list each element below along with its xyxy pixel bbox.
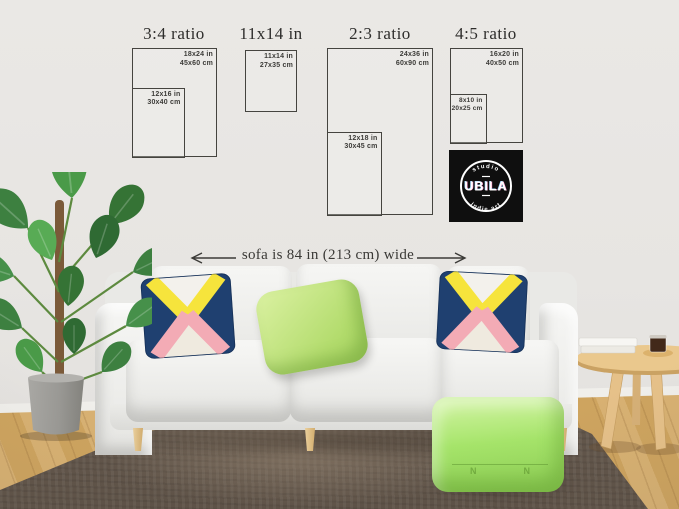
side-table [565, 325, 679, 465]
frame-label-16x20: 16x20 in 40x50 cm [486, 51, 519, 68]
geometric-pillow-left [139, 272, 236, 360]
plant-leaves [0, 172, 152, 380]
heading-4-5-ratio: 4:5 ratio [455, 24, 517, 44]
candle-lid [650, 335, 667, 339]
pouf-stitch: N [470, 465, 477, 476]
heading-2-3-ratio: 2:3 ratio [349, 24, 411, 44]
candle-jar [650, 337, 666, 352]
left-arrow-icon [188, 251, 236, 265]
green-pouf: N N [432, 397, 564, 492]
frame-label-12x16: 12x16 in 30x40 cm [147, 91, 180, 108]
geometric-pillow-right [435, 270, 529, 355]
frame-label-12x18: 12x18 in 30x45 cm [344, 135, 377, 152]
green-pillow [253, 277, 370, 378]
heading-3-4-ratio: 3:4 ratio [143, 24, 205, 44]
frame-label-18x24: 18x24 in 45x60 cm [180, 51, 213, 68]
frame-24x36: 24x36 in 60x90 cm 12x18 in 30x45 cm [327, 48, 433, 215]
right-arrow-icon [417, 251, 469, 265]
book-bottom [581, 346, 635, 353]
logo-name: UBILA [464, 179, 507, 193]
pouf-seam: N N [452, 464, 548, 476]
frame-12x18: 12x18 in 30x45 cm [327, 132, 382, 216]
frame-label-11x14: 11x14 in 27x35 cm [260, 53, 293, 70]
table-shadow [589, 441, 641, 453]
pot-rim [28, 374, 84, 383]
room-mockup-scene: 3:4 ratio 18x24 in 45x60 cm 12x16 in 30x… [0, 0, 679, 509]
frame-8x10: 8x10 in 20x25 cm [450, 94, 487, 144]
book-top [579, 338, 637, 346]
table-leg-right [650, 363, 666, 450]
sofa-width-annotation: sofa is 84 in (213 cm) wide [242, 247, 414, 264]
frame-label-8x10: 8x10 in 20x25 cm [452, 97, 483, 114]
frame-16x20: 16x20 in 40x50 cm 8x10 in 20x25 cm [450, 48, 523, 143]
heading-11x14: 11x14 in [239, 24, 302, 44]
ubila-studio-logo: studio UBILA UBILA UBILA indie art [449, 150, 523, 222]
frame-label-24x36: 24x36 in 60x90 cm [396, 51, 429, 68]
pouf-stitch: N [524, 465, 531, 476]
frame-18x24: 18x24 in 45x60 cm 12x16 in 30x40 cm [132, 48, 217, 157]
frame-11x14: 11x14 in 27x35 cm [245, 50, 297, 112]
frame-12x16: 12x16 in 30x40 cm [132, 88, 185, 158]
table-leg-left [601, 363, 625, 449]
monstera-plant [0, 172, 152, 444]
plant-pot [28, 378, 84, 435]
